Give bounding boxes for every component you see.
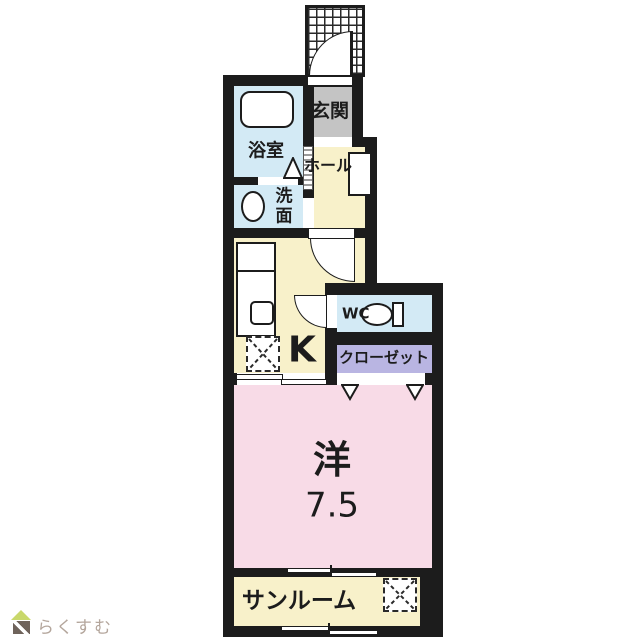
label-sunroom: サンルーム: [242, 588, 356, 614]
sliding-door-icon: [281, 379, 327, 385]
label-western-room-size: 7.5: [305, 486, 359, 525]
logo-text: らくすむ: [37, 613, 113, 638]
wall: [223, 373, 237, 385]
logo-house-icon: [13, 621, 30, 634]
sliding-window-icon: [329, 630, 378, 635]
wall: [425, 373, 443, 385]
label-washroom: 洗面: [274, 187, 294, 226]
sunroom-storage-space-icon: [383, 578, 417, 612]
closet-bifold-door-icon: [341, 384, 359, 401]
stove-icon: [250, 301, 274, 325]
washroom-doorway: [303, 198, 314, 228]
wall: [325, 283, 443, 295]
sliding-door-icon: [236, 374, 283, 380]
label-toilet: WC: [342, 305, 358, 322]
toilet-tank-icon: [392, 302, 404, 327]
wall: [223, 75, 234, 636]
wall: [420, 568, 443, 636]
refrigerator-space-icon: [246, 336, 280, 372]
label-kitchen: K: [288, 329, 316, 370]
label-western-room: 洋: [313, 439, 351, 483]
label-entrance: 玄関: [311, 101, 349, 123]
label-closet: クローゼット: [339, 349, 429, 366]
sliding-door-icon: [331, 572, 377, 577]
bathroom-folding-door-icon: [283, 157, 303, 179]
label-bathroom: 浴室: [248, 142, 284, 163]
sliding-window-tick: [328, 623, 330, 635]
wall: [223, 75, 308, 86]
sliding-door-icon: [287, 568, 333, 573]
entrance-step: [308, 75, 352, 87]
logo-house-icon: [11, 610, 31, 620]
label-hall: ホール: [304, 157, 352, 175]
bathtub-icon: [240, 91, 294, 128]
sliding-window-icon: [281, 626, 330, 631]
wall: [327, 373, 337, 385]
washbasin-icon: [241, 191, 265, 222]
wall: [325, 332, 443, 345]
closet-bifold-door-icon: [406, 384, 424, 401]
floor-plan: 玄関 浴室 洗面 ホール K WC クローゼット 洋 7.5 サンルーム らくす…: [0, 0, 640, 640]
sliding-door-tick: [330, 565, 332, 577]
